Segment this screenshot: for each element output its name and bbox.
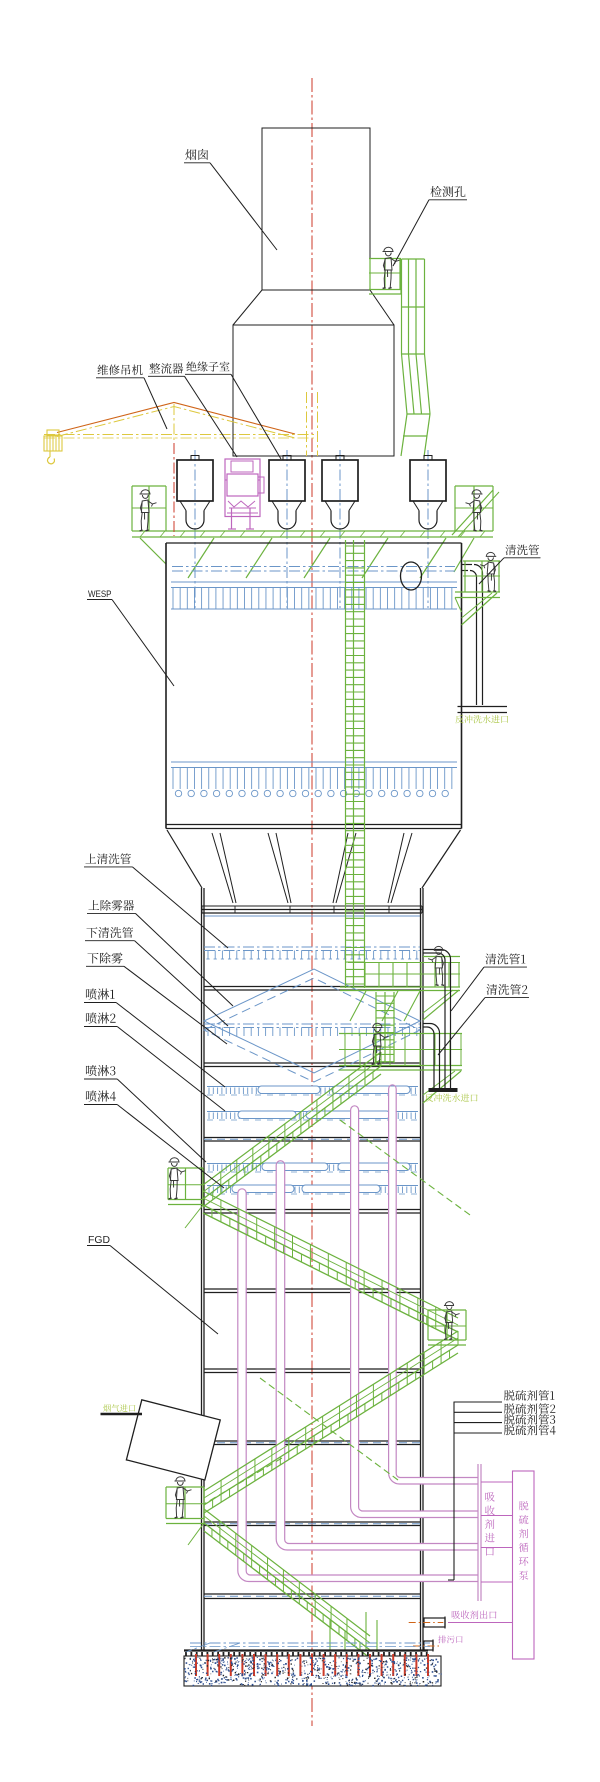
svg-text:FGD: FGD [88,1235,110,1246]
svg-text:WESP: WESP [88,589,112,600]
